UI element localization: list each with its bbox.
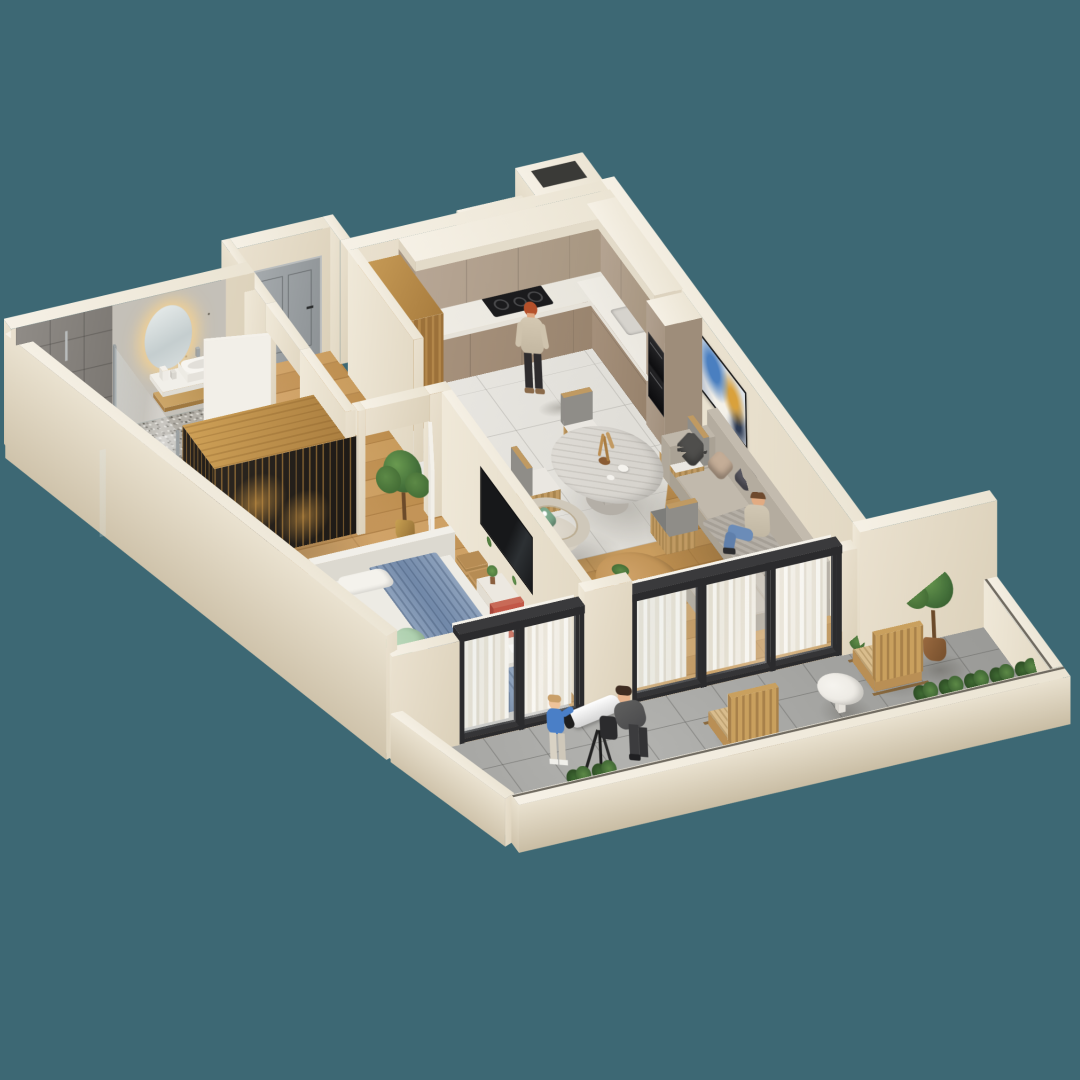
telescope-objective: [560, 709, 576, 730]
apartment-render: { "scene": { "title": "3D isometric cuta…: [0, 0, 1080, 1080]
double-oven: [648, 331, 664, 417]
cup: [605, 474, 616, 481]
telescope-mount: [599, 715, 617, 740]
telescope-tube: [566, 692, 623, 730]
tv-shelf-plant-2: [512, 574, 516, 587]
teapot: [616, 464, 630, 473]
shower-head: [65, 331, 68, 361]
vent-opening: [531, 161, 587, 188]
